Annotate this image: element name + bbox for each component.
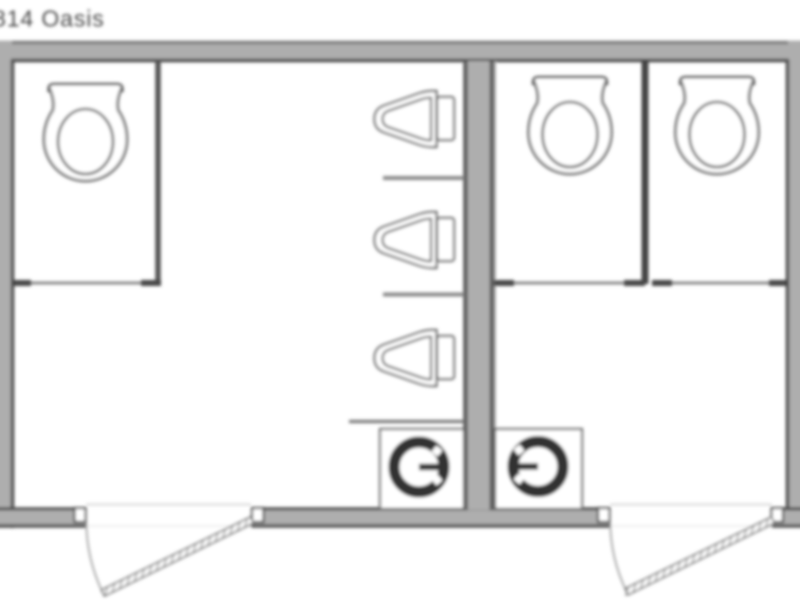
svg-text:814 Oasis: 814 Oasis xyxy=(0,6,105,32)
